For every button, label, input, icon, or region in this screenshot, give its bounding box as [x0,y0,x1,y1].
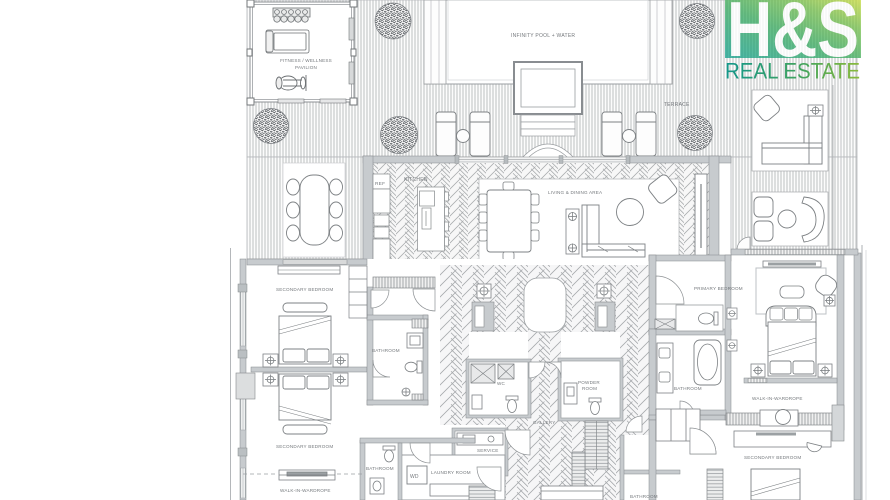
svg-text:WALK-IN-WARDROPE: WALK-IN-WARDROPE [752,396,803,401]
svg-text:REAL ESTATE: REAL ESTATE [725,59,860,84]
svg-text:TERRACE: TERRACE [664,102,690,108]
svg-text:GALLERY: GALLERY [533,420,556,425]
svg-text:WC: WC [497,381,506,386]
svg-text:ROOM: ROOM [582,386,597,391]
svg-text:WD: WD [410,474,419,480]
svg-text:SECONDARY BEDROOM: SECONDARY BEDROOM [276,287,333,292]
svg-text:POWDER: POWDER [578,380,600,385]
svg-text:FITNESS / WELLNESS: FITNESS / WELLNESS [280,58,332,63]
svg-text:SECONDARY BEDROOM: SECONDARY BEDROOM [276,444,333,449]
svg-text:REF: REF [375,181,385,187]
svg-text:BATHROOM: BATHROOM [372,348,400,353]
svg-text:KITCHEN: KITCHEN [404,177,428,183]
svg-text:INFINITY POOL + WATER: INFINITY POOL + WATER [511,33,575,39]
svg-text:SERVICE: SERVICE [477,448,498,453]
svg-text:SECONDARY BEDROOM: SECONDARY BEDROOM [744,455,801,460]
svg-text:PRIMARY BEDROOM: PRIMARY BEDROOM [694,286,743,291]
svg-text:PAVILION: PAVILION [295,65,317,70]
svg-text:LAUNDRY ROOM: LAUNDRY ROOM [431,470,471,475]
svg-text:BATHROOM: BATHROOM [366,466,394,471]
svg-text:BATHROOM: BATHROOM [674,386,702,391]
svg-text:LIVING & DINING AREA: LIVING & DINING AREA [548,190,603,195]
svg-text:WALK-IN-WARDROPE: WALK-IN-WARDROPE [280,488,331,493]
svg-text:BATHROOM: BATHROOM [630,494,658,499]
